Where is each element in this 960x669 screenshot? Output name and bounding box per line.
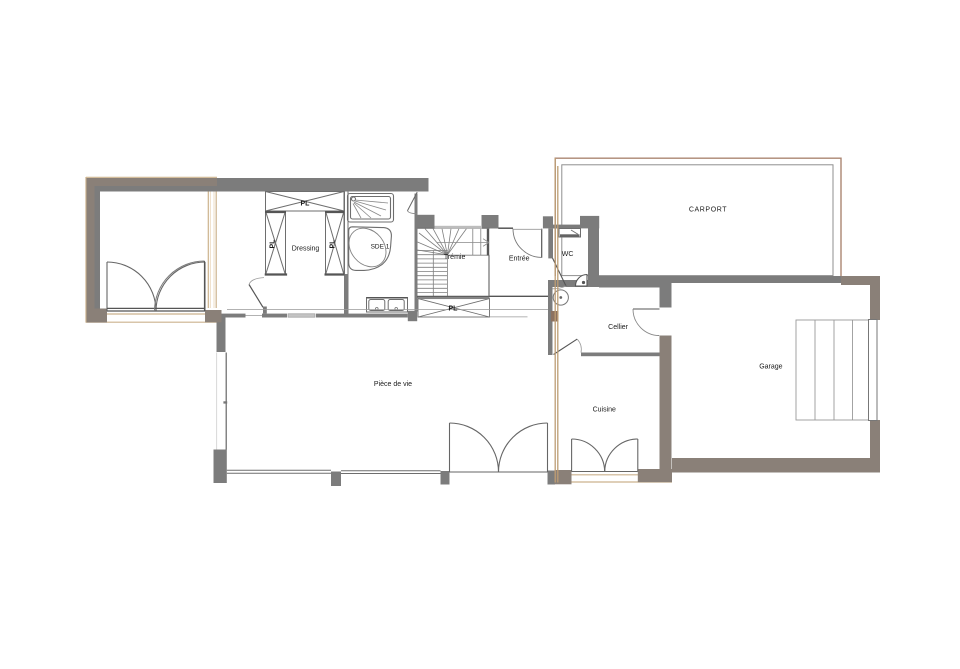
svg-text:PL: PL <box>301 201 311 208</box>
svg-text:Garage: Garage <box>759 364 782 371</box>
svg-text:Cellier: Cellier <box>608 324 629 331</box>
svg-text:Pièce de vie: Pièce de vie <box>374 381 412 388</box>
svg-text:Entrée: Entrée <box>509 256 530 263</box>
svg-text:Dressing: Dressing <box>292 246 320 253</box>
svg-text:Trémie: Trémie <box>444 254 466 261</box>
svg-text:CARPORT: CARPORT <box>689 207 727 214</box>
svg-text:PL: PL <box>270 239 277 249</box>
svg-text:SDE 1: SDE 1 <box>371 244 390 251</box>
svg-text:WC: WC <box>562 251 574 258</box>
svg-text:PL: PL <box>449 306 459 313</box>
svg-text:PL: PL <box>330 239 337 249</box>
svg-text:Cuisine: Cuisine <box>593 407 616 414</box>
